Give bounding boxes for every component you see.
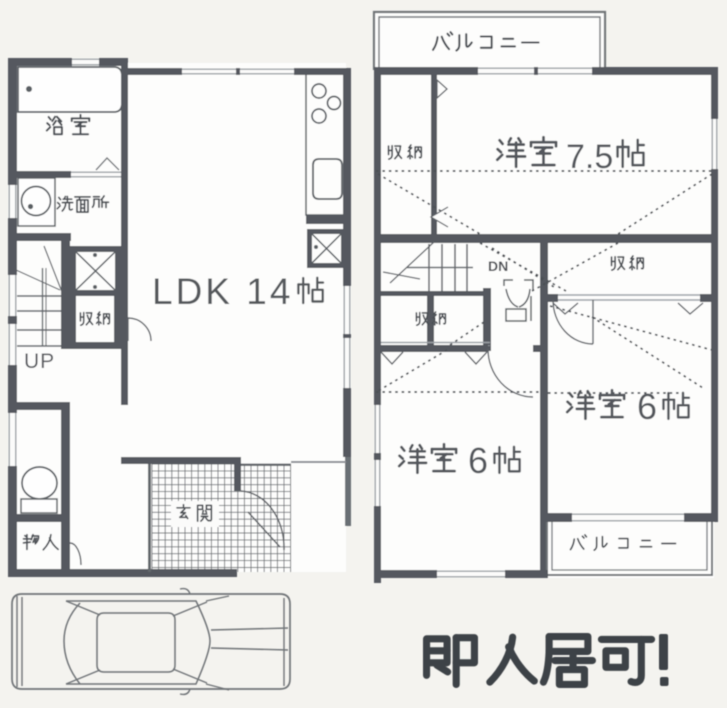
svg-text:DN: DN (488, 258, 508, 274)
svg-text:6: 6 (468, 440, 488, 481)
svg-text:UP: UP (24, 350, 55, 373)
svg-text:LDK 14: LDK 14 (152, 271, 293, 312)
svg-text:7.5: 7.5 (566, 138, 613, 176)
svg-text:6: 6 (637, 386, 657, 427)
